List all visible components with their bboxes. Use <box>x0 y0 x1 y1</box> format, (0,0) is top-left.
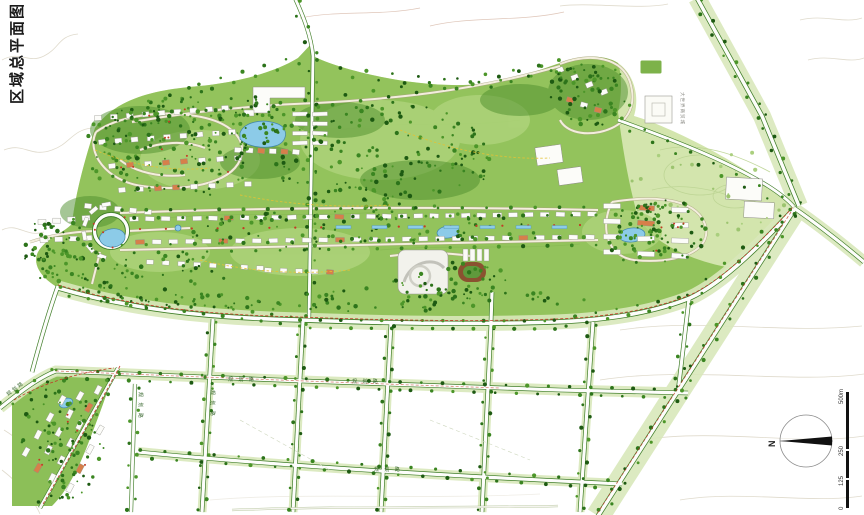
road-label-central-vertical: 规 划 路 <box>209 390 216 418</box>
small-pitch <box>640 60 662 74</box>
sketch-contours-red <box>300 8 564 26</box>
master-plan-map: 区域总平面图 规 划 路 规 划 路 规 划 路 规 划 路 规 划 路 规划路… <box>0 0 864 515</box>
scale-250: 250 <box>839 445 845 456</box>
scale-0: 0 <box>839 506 845 510</box>
courtyard-building <box>645 96 672 123</box>
scale-125: 125 <box>839 475 845 486</box>
compass-rose: N <box>767 415 833 467</box>
road-label-center: 规 划 路 <box>228 376 256 383</box>
master-plan-page: 区域总平面图 规 划 路 规 划 路 规 划 路 规 划 路 规 划 路 规划路… <box>0 0 864 515</box>
scale-bar: 0 125 250 500m <box>839 389 850 510</box>
north-label: N <box>767 441 777 448</box>
road-label-east-center: 规 划 路 <box>352 378 380 385</box>
road-label-south: 规 划 路 <box>374 466 402 473</box>
road-label-west-vertical: 规 划 路 <box>137 392 144 420</box>
stadium-building <box>398 250 448 294</box>
page-title: 区域总平面图 <box>8 2 26 104</box>
scale-500: 500m <box>839 389 845 404</box>
district-label-northeast: 大世界商贸城 <box>679 92 686 125</box>
